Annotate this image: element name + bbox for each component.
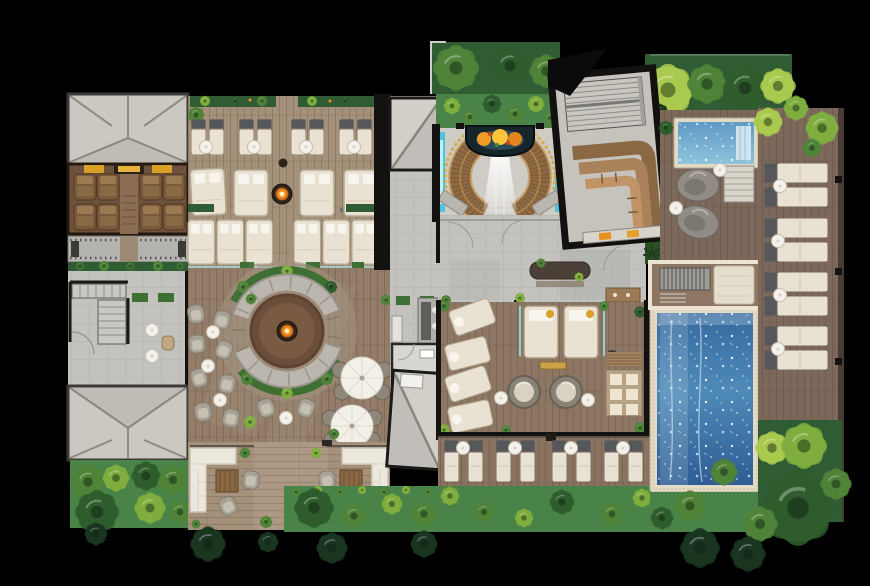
hedge — [188, 204, 214, 212]
daybed — [188, 220, 215, 264]
bowl — [279, 159, 288, 168]
recliner-chair — [97, 174, 119, 200]
west-stone-hall — [68, 271, 185, 386]
stool — [146, 350, 159, 363]
cabinet — [392, 316, 402, 342]
plunge-pool-area — [659, 110, 758, 270]
central-lounge-deck — [187, 249, 392, 453]
towel-shelf — [606, 370, 642, 416]
sun-lounger — [628, 440, 643, 482]
pool-steps — [736, 126, 751, 160]
sun-lounger — [576, 440, 591, 482]
plunge-pool — [674, 118, 758, 168]
side-table — [348, 141, 361, 154]
slat-grill — [660, 268, 710, 290]
planter — [396, 296, 410, 305]
floor-plan-rendering — [0, 0, 870, 586]
gold-pillow — [546, 310, 554, 318]
north-pavilion-roof — [68, 94, 188, 164]
south-garden — [284, 486, 651, 532]
gold-pillow — [118, 166, 140, 172]
gold-pillow — [152, 165, 172, 173]
recliner-chair — [140, 174, 162, 200]
rock-lounger — [677, 169, 719, 201]
side-table — [774, 289, 787, 302]
side-table — [214, 394, 227, 407]
sun-lounger — [520, 440, 535, 482]
side-table — [300, 141, 313, 154]
recliner-chair — [163, 174, 185, 200]
chair — [162, 336, 174, 350]
side-table — [774, 180, 787, 193]
side-table — [509, 442, 522, 455]
main-pool — [650, 306, 760, 492]
towel — [599, 232, 612, 240]
long-table — [530, 258, 590, 287]
daybed — [294, 220, 321, 264]
south-lounger-row — [438, 433, 650, 487]
side-table — [495, 392, 508, 405]
side-table — [565, 442, 578, 455]
planter — [132, 293, 148, 302]
recliner-chair — [74, 204, 96, 230]
fire-bowl — [272, 184, 292, 204]
southwest-garden — [70, 460, 192, 534]
pool-sauna-structure — [650, 262, 760, 308]
slat-mat — [606, 352, 642, 366]
side-table — [280, 412, 293, 425]
armchair — [218, 374, 237, 395]
side-table — [772, 235, 785, 248]
west-wing — [68, 94, 192, 534]
north-sun-deck — [188, 96, 379, 270]
hedge-row — [68, 261, 188, 272]
sun-lounger — [764, 272, 828, 292]
recliner-chair — [74, 174, 96, 200]
gold-pillow — [586, 310, 594, 318]
side-table — [772, 343, 785, 356]
deck-stair — [724, 166, 754, 202]
daybed — [234, 170, 268, 216]
recliner-chair — [140, 204, 162, 230]
sun-lounger — [764, 218, 828, 238]
pebble-bench-strip — [68, 236, 188, 262]
side-table — [202, 360, 215, 373]
side-table — [457, 442, 470, 455]
recliner-chair — [97, 204, 119, 230]
gold-bench — [540, 362, 566, 369]
recliner-room — [68, 164, 188, 234]
daybed — [300, 170, 334, 216]
armchair — [242, 470, 260, 490]
skylight — [400, 374, 423, 389]
armchair — [188, 334, 206, 353]
papasan-chair — [508, 376, 540, 408]
stool — [146, 324, 159, 337]
side-table — [617, 442, 630, 455]
side-table — [200, 141, 213, 154]
sun-lounger — [468, 440, 483, 482]
daybed — [323, 220, 350, 264]
lotus-pond — [466, 126, 534, 156]
fire-pit — [277, 321, 297, 341]
relaxation-rooms — [436, 298, 650, 440]
recliner-chair — [163, 204, 185, 230]
side-table — [714, 164, 727, 177]
side-table — [670, 202, 683, 215]
umbrella-table — [332, 357, 392, 400]
side-bench — [606, 288, 640, 302]
north-garden — [431, 42, 563, 128]
armchair — [187, 304, 206, 325]
side-table — [207, 326, 220, 339]
sun-lounger — [764, 326, 828, 346]
hedge — [346, 204, 376, 212]
coffee-table — [216, 470, 238, 492]
daybed — [217, 220, 244, 264]
south-pavilion-roof — [68, 386, 188, 460]
sun-lounger — [764, 296, 828, 316]
gold-pillow — [84, 165, 104, 173]
side-table — [582, 394, 595, 407]
towel — [627, 230, 640, 238]
armchair — [194, 402, 212, 422]
side-table — [248, 141, 261, 154]
bench-cushion — [714, 266, 754, 304]
sun-lounger — [764, 187, 828, 207]
floor-plan-stage — [0, 0, 870, 586]
planter — [158, 293, 174, 302]
sun-lounger — [764, 163, 828, 183]
gate-post — [546, 433, 556, 441]
